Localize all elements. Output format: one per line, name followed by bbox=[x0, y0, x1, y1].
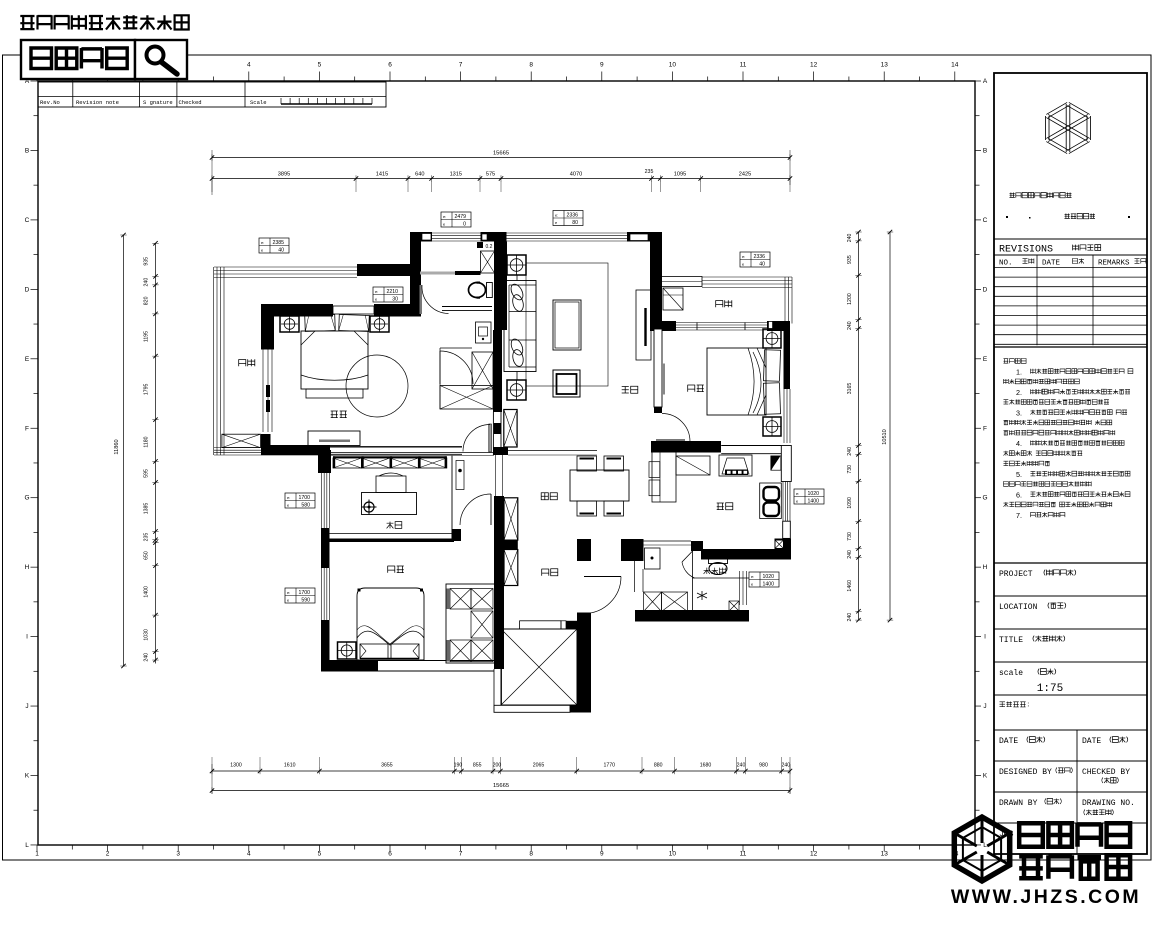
svg-text:240: 240 bbox=[847, 233, 853, 242]
svg-text:240: 240 bbox=[144, 653, 150, 662]
svg-text:3.: 3. bbox=[1016, 408, 1022, 417]
svg-text:L: L bbox=[983, 842, 987, 849]
svg-text:TITLE: TITLE bbox=[999, 636, 1023, 645]
svg-text:1:75: 1:75 bbox=[1037, 683, 1063, 695]
svg-text:855: 855 bbox=[473, 763, 482, 769]
svg-text:5: 5 bbox=[318, 851, 322, 858]
svg-text:2385: 2385 bbox=[272, 240, 284, 246]
svg-text:F: F bbox=[983, 425, 987, 432]
svg-text:10: 10 bbox=[669, 851, 677, 858]
svg-text:e:: e: bbox=[555, 213, 558, 218]
svg-text:1385: 1385 bbox=[144, 503, 150, 515]
svg-text:Rev.No: Rev.No bbox=[40, 99, 60, 106]
svg-text:575: 575 bbox=[486, 172, 495, 178]
svg-text:10510: 10510 bbox=[882, 429, 888, 445]
svg-text:E: E bbox=[25, 356, 30, 363]
svg-text:1300: 1300 bbox=[230, 763, 242, 769]
svg-text:6.: 6. bbox=[1016, 490, 1022, 499]
svg-text:580: 580 bbox=[301, 503, 310, 509]
svg-text:9: 9 bbox=[600, 851, 604, 858]
svg-text:I: I bbox=[984, 634, 986, 641]
svg-text:1400: 1400 bbox=[144, 586, 150, 598]
svg-text:240: 240 bbox=[847, 550, 853, 559]
svg-text:1020: 1020 bbox=[762, 574, 774, 580]
svg-text:D: D bbox=[983, 286, 988, 293]
svg-text:10: 10 bbox=[669, 62, 677, 69]
svg-text:A: A bbox=[983, 78, 988, 85]
svg-text:4: 4 bbox=[247, 62, 251, 69]
svg-text:235: 235 bbox=[645, 169, 654, 175]
svg-text:5.: 5. bbox=[1016, 470, 1022, 479]
svg-text:PROJECT: PROJECT bbox=[999, 570, 1033, 579]
svg-text:1770: 1770 bbox=[604, 763, 616, 769]
svg-text:1700: 1700 bbox=[298, 495, 310, 501]
svg-text:8: 8 bbox=[529, 851, 533, 858]
svg-text:1415: 1415 bbox=[376, 172, 388, 178]
svg-text:K: K bbox=[983, 773, 988, 780]
svg-text:640: 640 bbox=[415, 172, 424, 178]
svg-text:235: 235 bbox=[144, 533, 150, 542]
svg-text:H: H bbox=[25, 564, 30, 571]
svg-text:2065: 2065 bbox=[533, 763, 545, 769]
svg-text:40: 40 bbox=[278, 248, 284, 254]
svg-text:4.: 4. bbox=[1016, 439, 1022, 448]
svg-text:240: 240 bbox=[144, 278, 150, 287]
svg-text:F: F bbox=[25, 425, 29, 432]
svg-text:3: 3 bbox=[176, 851, 180, 858]
svg-text:e:: e: bbox=[287, 590, 290, 595]
svg-text:650: 650 bbox=[144, 551, 150, 560]
svg-text:11: 11 bbox=[740, 62, 747, 69]
svg-text:B: B bbox=[25, 147, 29, 154]
svg-text:H: H bbox=[983, 564, 988, 571]
svg-text:1030: 1030 bbox=[144, 629, 150, 641]
svg-text:K: K bbox=[25, 773, 30, 780]
svg-text:1.: 1. bbox=[1016, 367, 1022, 376]
svg-text:880: 880 bbox=[654, 763, 663, 769]
svg-text:14: 14 bbox=[951, 62, 959, 69]
svg-text:80: 80 bbox=[572, 220, 578, 226]
svg-text:1090: 1090 bbox=[847, 497, 853, 509]
svg-text:G: G bbox=[24, 495, 29, 502]
svg-text:G: G bbox=[982, 495, 987, 502]
svg-text:1195: 1195 bbox=[144, 331, 150, 342]
svg-text:2336: 2336 bbox=[753, 254, 765, 260]
svg-text:9: 9 bbox=[600, 62, 604, 69]
svg-text:2479: 2479 bbox=[454, 214, 466, 220]
svg-text:595: 595 bbox=[144, 469, 150, 478]
svg-text:2425: 2425 bbox=[739, 172, 751, 178]
svg-text:e:: e: bbox=[796, 491, 799, 496]
svg-text:1795: 1795 bbox=[144, 384, 150, 396]
svg-text:1315: 1315 bbox=[450, 172, 462, 178]
svg-text:Revision note: Revision note bbox=[76, 99, 119, 106]
svg-text:6: 6 bbox=[388, 62, 392, 69]
svg-text:e:: e: bbox=[742, 254, 745, 259]
svg-text:15665: 15665 bbox=[493, 783, 509, 789]
svg-text:J: J bbox=[983, 703, 986, 710]
svg-text:C: C bbox=[25, 217, 30, 224]
svg-text:1180: 1180 bbox=[144, 436, 150, 447]
svg-text:980: 980 bbox=[759, 763, 768, 769]
svg-text:13: 13 bbox=[881, 62, 889, 69]
svg-text:2336: 2336 bbox=[566, 213, 578, 219]
svg-text:820: 820 bbox=[144, 296, 150, 305]
svg-text:C: C bbox=[983, 217, 988, 224]
svg-text:e:: e: bbox=[287, 495, 290, 500]
svg-text:CHECKED BY: CHECKED BY bbox=[1082, 768, 1130, 777]
svg-text:935: 935 bbox=[847, 255, 853, 264]
svg-text:DRAWING NO.: DRAWING NO. bbox=[1082, 799, 1135, 808]
svg-text:730: 730 bbox=[847, 532, 853, 541]
svg-text:5: 5 bbox=[318, 62, 322, 69]
svg-text:1460: 1460 bbox=[847, 580, 853, 592]
svg-text:11860: 11860 bbox=[114, 439, 120, 454]
svg-text:NO.: NO. bbox=[999, 260, 1013, 268]
svg-text:1700: 1700 bbox=[298, 590, 310, 596]
svg-text:4: 4 bbox=[247, 851, 251, 858]
svg-text:1680: 1680 bbox=[700, 763, 712, 769]
svg-text:935: 935 bbox=[144, 257, 150, 266]
svg-text:L: L bbox=[25, 842, 29, 849]
svg-text:2210: 2210 bbox=[386, 289, 398, 295]
svg-text:0: 0 bbox=[463, 222, 466, 228]
svg-text:REVISIONS: REVISIONS bbox=[999, 245, 1053, 256]
svg-text:e:: e: bbox=[375, 289, 378, 294]
svg-text:e:: e: bbox=[261, 240, 264, 245]
svg-text:30: 30 bbox=[392, 297, 398, 303]
svg-text:E: E bbox=[983, 356, 988, 363]
svg-text:B: B bbox=[983, 147, 987, 154]
svg-text:0.2: 0.2 bbox=[486, 244, 493, 250]
svg-text:DATE: DATE bbox=[1082, 737, 1101, 746]
svg-text:240: 240 bbox=[737, 763, 746, 769]
svg-text:I: I bbox=[26, 634, 28, 641]
svg-text:7: 7 bbox=[459, 62, 463, 69]
svg-text:240: 240 bbox=[847, 613, 853, 622]
svg-text:LOCATION: LOCATION bbox=[999, 603, 1038, 612]
svg-text:730: 730 bbox=[847, 465, 853, 474]
svg-text:2.: 2. bbox=[1016, 388, 1022, 397]
svg-text:scale: scale bbox=[999, 669, 1023, 678]
svg-text:1400: 1400 bbox=[762, 582, 774, 588]
svg-text:3655: 3655 bbox=[381, 763, 393, 769]
svg-text:1: 1 bbox=[35, 851, 39, 858]
svg-text:240: 240 bbox=[781, 763, 790, 769]
svg-text:8: 8 bbox=[529, 62, 533, 69]
svg-text:e:: e: bbox=[443, 214, 446, 219]
svg-text:S gnature: S gnature bbox=[143, 99, 173, 106]
svg-text:1610: 1610 bbox=[284, 763, 296, 769]
svg-text:3165: 3165 bbox=[847, 383, 853, 395]
svg-text:200: 200 bbox=[493, 763, 502, 769]
svg-text:590: 590 bbox=[301, 598, 310, 604]
svg-text:1200: 1200 bbox=[847, 293, 853, 305]
svg-text:4070: 4070 bbox=[570, 172, 582, 178]
svg-text:DATE: DATE bbox=[1042, 260, 1061, 268]
svg-text:WWW.JHZS.COM: WWW.JHZS.COM bbox=[951, 886, 1141, 908]
svg-text:DRAWN BY: DRAWN BY bbox=[999, 799, 1038, 808]
svg-text:190: 190 bbox=[454, 763, 463, 769]
svg-text:1095: 1095 bbox=[674, 172, 686, 178]
svg-text:12: 12 bbox=[810, 62, 818, 69]
svg-text:DESIGNED BY: DESIGNED BY bbox=[999, 768, 1052, 777]
svg-text:2: 2 bbox=[106, 851, 110, 858]
svg-text:15665: 15665 bbox=[493, 151, 509, 157]
svg-text:1020: 1020 bbox=[807, 491, 819, 497]
svg-text:J: J bbox=[25, 703, 28, 710]
svg-text:e:: e: bbox=[751, 574, 754, 579]
svg-text:3895: 3895 bbox=[278, 172, 290, 178]
svg-text:D: D bbox=[25, 286, 30, 293]
svg-text:12: 12 bbox=[810, 851, 818, 858]
svg-text:7: 7 bbox=[459, 851, 463, 858]
svg-text:DATE: DATE bbox=[999, 737, 1018, 746]
svg-text:240: 240 bbox=[847, 447, 853, 456]
svg-text:Scale: Scale bbox=[250, 99, 267, 106]
svg-text:11: 11 bbox=[740, 851, 747, 858]
svg-text:13: 13 bbox=[881, 851, 889, 858]
svg-text:Checked: Checked bbox=[179, 99, 202, 106]
svg-text:40: 40 bbox=[759, 262, 765, 268]
svg-text:6: 6 bbox=[388, 851, 392, 858]
svg-text:7.: 7. bbox=[1016, 511, 1022, 520]
svg-text:240: 240 bbox=[847, 321, 853, 330]
svg-text:REMARKS: REMARKS bbox=[1098, 260, 1130, 268]
svg-text:1400: 1400 bbox=[807, 499, 819, 505]
